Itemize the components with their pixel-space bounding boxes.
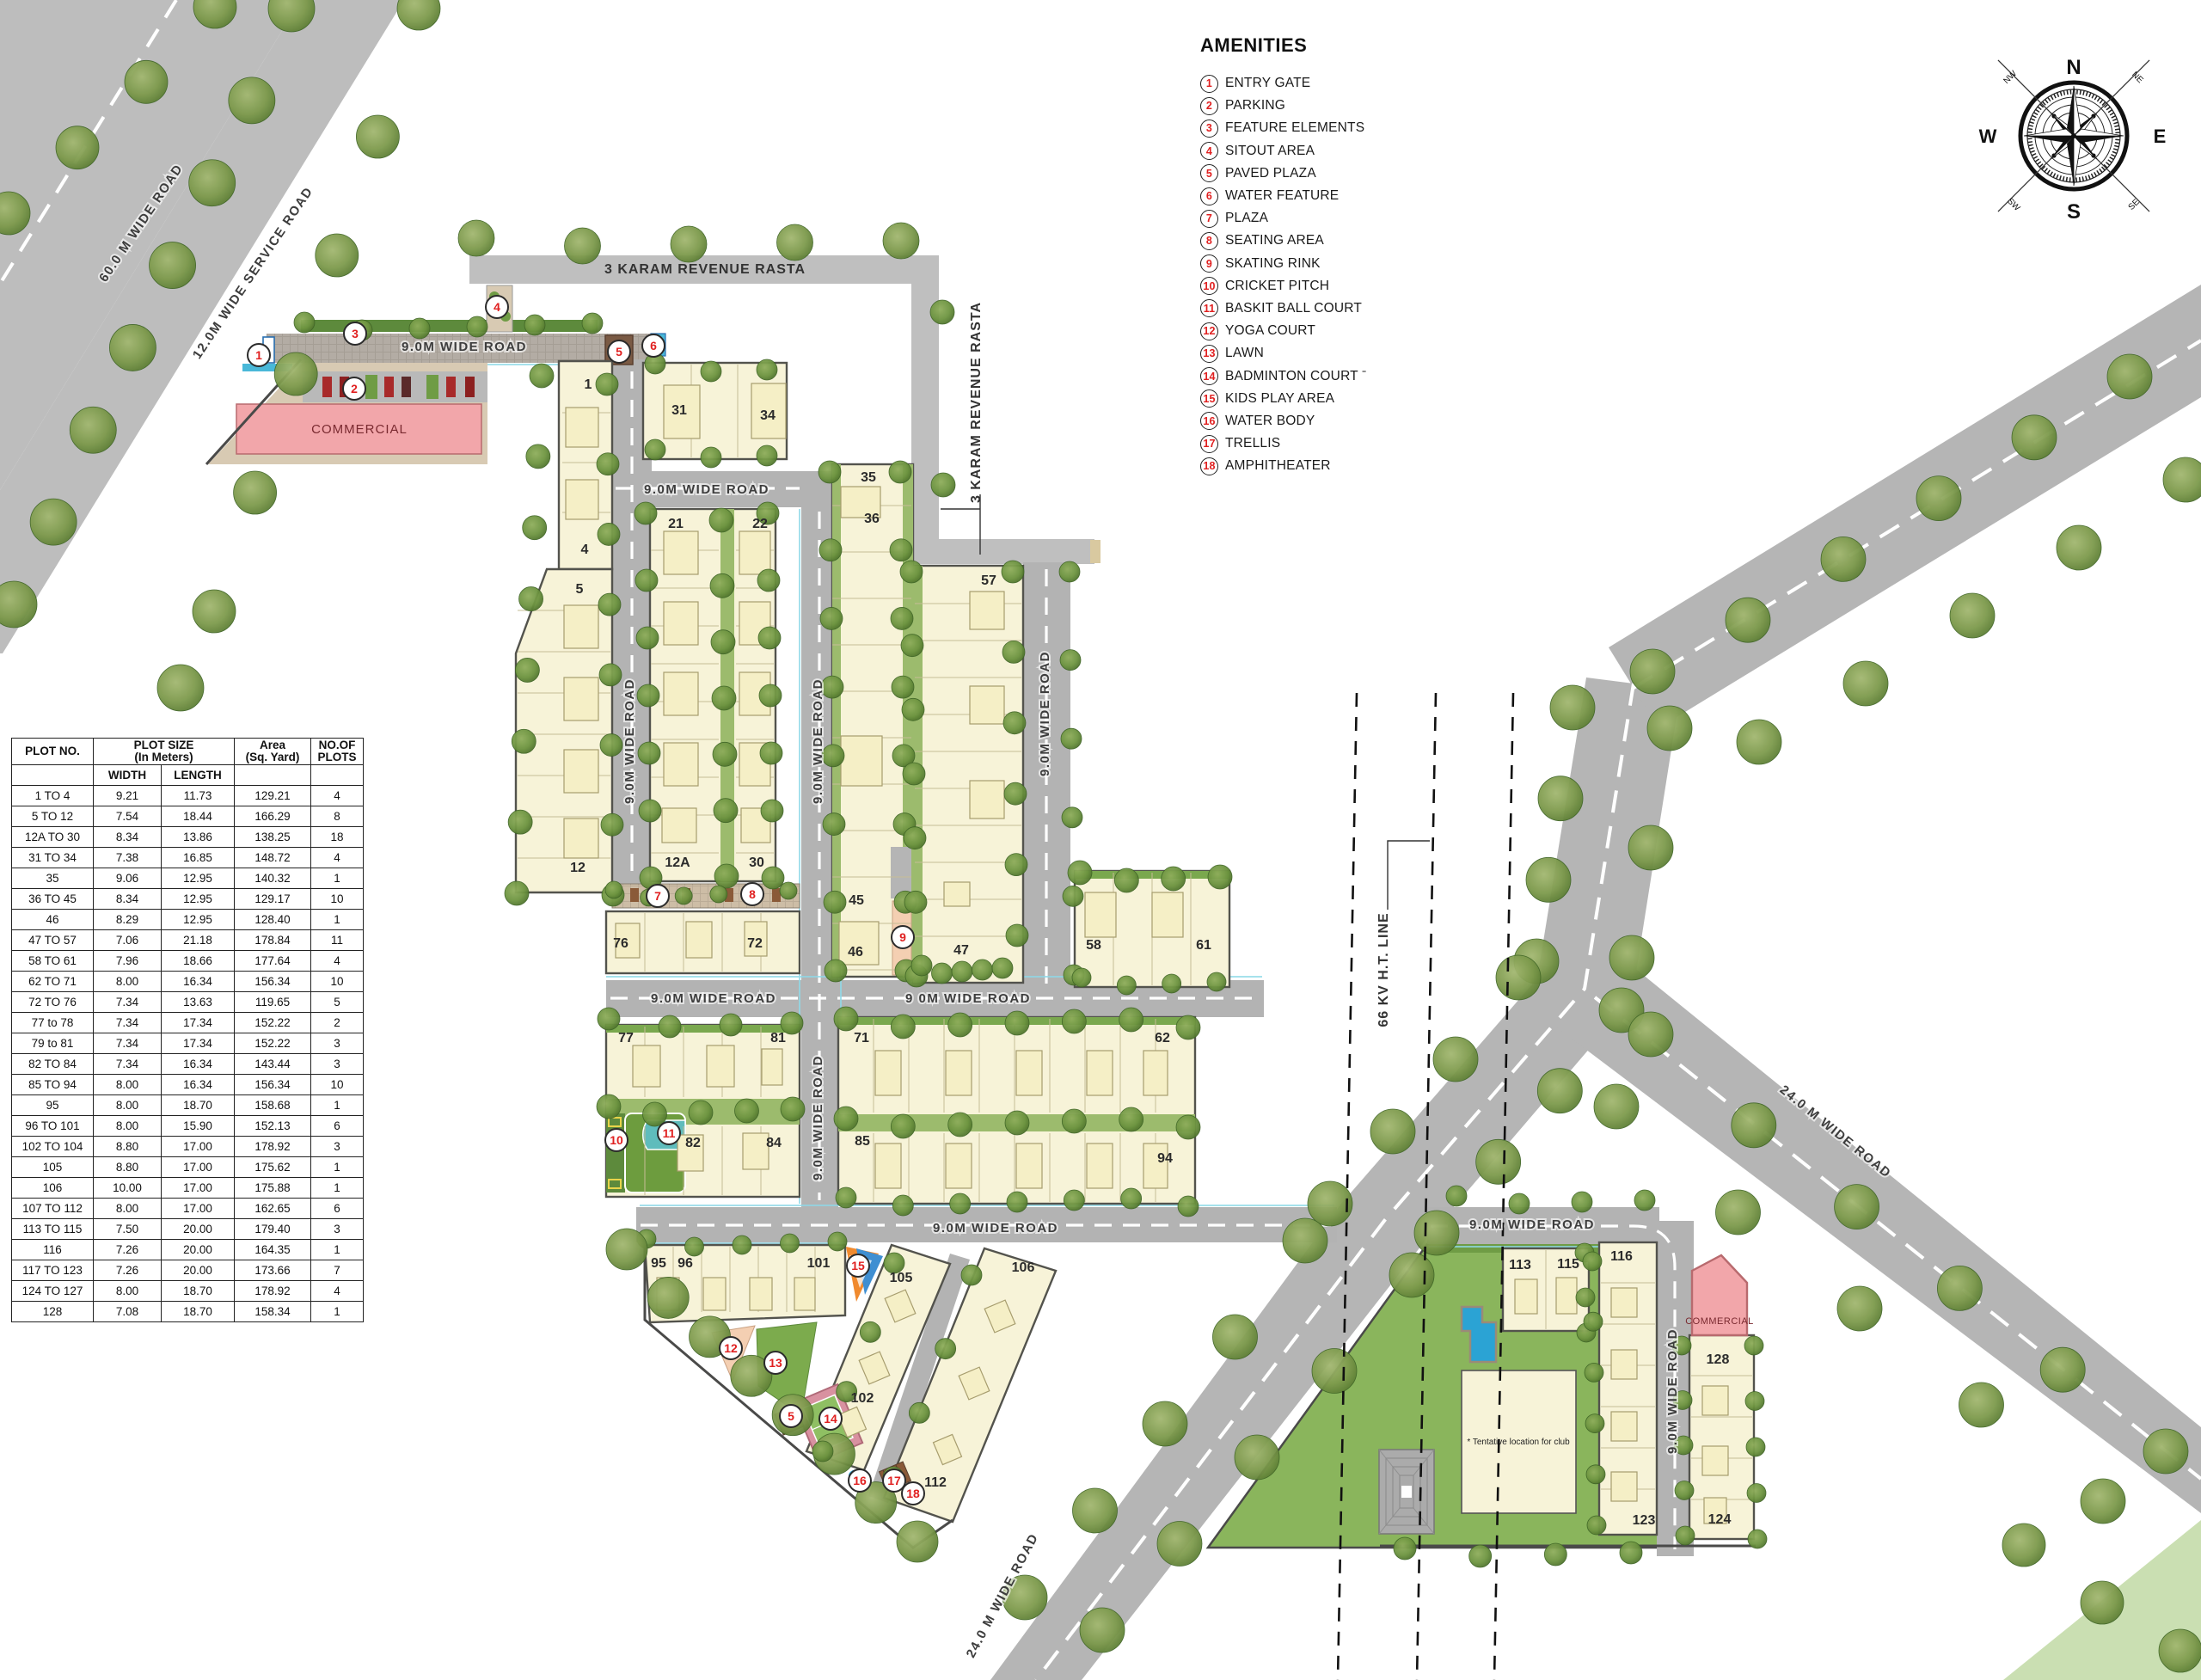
tree	[2040, 1347, 2085, 1392]
amenity-number: 5	[1200, 164, 1218, 182]
plot-number: 115	[1557, 1257, 1579, 1272]
amenity-number: 11	[1200, 299, 1218, 317]
amenity-number: 4	[1200, 142, 1218, 160]
amenities-items: 1ENTRY GATE2PARKING3FEATURE ELEMENTS4SIT…	[1200, 72, 1484, 477]
tree	[56, 126, 99, 169]
tree	[1950, 593, 1995, 638]
tree	[1007, 1192, 1027, 1212]
table-row: 1058.8017.00175.621	[12, 1157, 364, 1178]
amenity-number: 17	[1200, 435, 1218, 453]
table-row: 36 TO 458.3412.95129.1710	[12, 889, 364, 910]
building-footprint	[1143, 1144, 1168, 1188]
tree	[961, 1265, 982, 1285]
tree	[635, 569, 658, 592]
table-cell: 156.34	[235, 972, 311, 992]
amenity-marker-15: 15	[847, 1254, 869, 1277]
tree	[819, 539, 842, 561]
table-cell: 162.65	[235, 1199, 311, 1219]
table-cell: 6	[311, 1116, 364, 1137]
amenity-label: TRELLIS	[1225, 436, 1280, 451]
tree	[701, 361, 721, 382]
road-label: 66 KV H.T. LINE	[1376, 912, 1391, 1027]
amenity-item-4: 4SITOUT AREA	[1200, 140, 1484, 162]
tree	[781, 1234, 800, 1253]
tree	[659, 1015, 681, 1038]
col-length: LENGTH	[162, 765, 235, 786]
tree	[2163, 457, 2201, 502]
table-cell: 178.92	[235, 1281, 311, 1302]
tree	[1550, 685, 1595, 730]
road-label: 9.0M WIDE ROAD	[651, 991, 776, 1006]
tree	[930, 300, 954, 324]
tree	[1162, 974, 1181, 993]
plot-number: 30	[749, 855, 764, 870]
amenity-marker-4: 4	[486, 296, 508, 318]
amenity-item-9: 9SKATING RINK	[1200, 253, 1484, 275]
amenity-label: CRICKET PITCH	[1225, 279, 1329, 294]
table-cell: 16.34	[162, 972, 235, 992]
table-cell: 12A TO 30	[12, 827, 94, 848]
table-row: 85 TO 948.0016.34156.3410	[12, 1075, 364, 1095]
building-footprint	[1556, 1278, 1577, 1314]
tree	[530, 364, 554, 388]
tree	[519, 587, 543, 611]
table-row: 77 to 787.3417.34152.222	[12, 1013, 364, 1033]
tree	[409, 318, 430, 339]
amenity-label: PARKING	[1225, 98, 1285, 113]
tree	[892, 676, 914, 698]
table-cell: 17.00	[162, 1199, 235, 1219]
tree	[635, 502, 657, 524]
tree	[1634, 1190, 1655, 1211]
tree	[935, 1339, 956, 1359]
amenity-item-1: 1ENTRY GATE	[1200, 72, 1484, 95]
tree	[909, 1402, 929, 1423]
table-row: 31 TO 347.3816.85148.724	[12, 848, 364, 868]
table-cell: 7	[311, 1260, 364, 1281]
tree	[1006, 924, 1028, 947]
svg-text:11: 11	[663, 1126, 676, 1140]
table-cell: 12.95	[162, 868, 235, 889]
road-label: 9 0M WIDE ROAD	[905, 991, 1031, 1006]
road-label: 3 KARAM REVENUE RASTA	[969, 302, 984, 503]
amenity-marker-16: 16	[849, 1469, 871, 1492]
table-cell: 4	[311, 848, 364, 868]
table-cell: 156.34	[235, 1075, 311, 1095]
tree	[892, 1195, 913, 1216]
building-footprint	[743, 1133, 769, 1169]
tree	[1586, 1465, 1605, 1484]
table-cell: 18.44	[162, 806, 235, 827]
tree	[1059, 561, 1080, 582]
table-cell: 8.00	[94, 1281, 162, 1302]
building-footprint	[1087, 1144, 1113, 1188]
amenity-number: 9	[1200, 254, 1218, 273]
svg-text:10: 10	[610, 1133, 623, 1147]
tree	[759, 684, 782, 707]
table-cell: 96 TO 101	[12, 1116, 94, 1137]
tree	[1937, 1266, 1982, 1310]
tree	[760, 742, 782, 764]
svg-text:3: 3	[352, 327, 359, 340]
table-cell: 152.22	[235, 1013, 311, 1033]
table-cell: 21.18	[162, 930, 235, 951]
tree	[1537, 1069, 1582, 1113]
table-row: 5 TO 127.5418.44166.298	[12, 806, 364, 827]
building-footprint	[875, 1051, 901, 1095]
tree	[1003, 712, 1026, 734]
amenity-item-6: 6WATER FEATURE	[1200, 185, 1484, 207]
tree	[1389, 1253, 1434, 1297]
tree	[948, 1013, 972, 1037]
table-cell: 10	[311, 972, 364, 992]
building-footprint	[1152, 892, 1183, 937]
table-cell: 10	[311, 1075, 364, 1095]
road-label: 9.0M WIDE ROAD	[811, 678, 825, 804]
building-footprint	[841, 736, 882, 786]
table-row: 113 TO 1157.5020.00179.403	[12, 1219, 364, 1240]
col-area: Area(Sq. Yard)	[235, 739, 311, 765]
plot-number: 12	[570, 861, 586, 875]
amenity-label: WATER BODY	[1225, 414, 1315, 429]
tree	[931, 473, 955, 497]
amenity-marker-14: 14	[819, 1407, 842, 1430]
tree	[932, 963, 953, 984]
svg-text:6: 6	[650, 339, 657, 353]
plot-number: 106	[1012, 1260, 1035, 1275]
table-row: 1167.2620.00164.351	[12, 1240, 364, 1260]
tree	[713, 742, 737, 766]
tree	[757, 445, 777, 466]
plot-number: 31	[671, 403, 687, 418]
svg-text:14: 14	[824, 1412, 837, 1426]
table-row: 79 to 817.3417.34152.223	[12, 1033, 364, 1054]
compass-letter-S: S	[2067, 200, 2081, 224]
building-footprint	[664, 672, 698, 715]
tree	[1609, 935, 1654, 980]
table-cell: 138.25	[235, 827, 311, 848]
plot-number: 34	[760, 408, 776, 423]
tree	[565, 228, 601, 264]
amenity-marker-13: 13	[764, 1352, 787, 1374]
table-cell: 7.26	[94, 1240, 162, 1260]
table-cell: 7.34	[94, 1013, 162, 1033]
compass-letter-N: N	[2066, 56, 2081, 79]
amenity-marker-7: 7	[647, 885, 669, 907]
tree	[1068, 861, 1092, 885]
plot-number: 77	[618, 1031, 634, 1045]
tree	[1509, 1193, 1530, 1214]
tree	[1647, 706, 1692, 751]
tree	[860, 1321, 880, 1342]
tree	[1061, 728, 1082, 749]
amenity-item-3: 3FEATURE ELEMENTS	[1200, 117, 1484, 139]
tree	[1283, 1218, 1327, 1263]
tree	[818, 461, 841, 483]
plot-number: 36	[864, 512, 880, 526]
tree	[600, 734, 622, 757]
amenity-marker-2: 2	[343, 377, 365, 400]
table-cell: 7.26	[94, 1260, 162, 1281]
table-cell: 152.22	[235, 1033, 311, 1054]
building-footprint	[750, 1278, 772, 1310]
compass-letter-E: E	[2154, 126, 2167, 147]
tree	[1587, 1516, 1606, 1535]
tree	[1675, 1481, 1694, 1500]
table-cell: 11.73	[162, 786, 235, 806]
amenity-label: SEATING AREA	[1225, 233, 1324, 248]
table-cell: 1	[311, 868, 364, 889]
plot-number: 22	[752, 517, 768, 531]
tree	[1208, 865, 1232, 889]
amenity-marker-12: 12	[720, 1337, 742, 1359]
table-cell: 10	[311, 889, 364, 910]
table-cell: 1	[311, 1157, 364, 1178]
building-footprint	[1143, 1051, 1168, 1095]
building-footprint	[1611, 1472, 1637, 1501]
tree	[467, 316, 487, 337]
tree	[458, 220, 494, 256]
road-label: 9.0M WIDE ROAD	[1038, 651, 1052, 776]
table-cell: 4	[311, 951, 364, 972]
table-cell: 173.66	[235, 1260, 311, 1281]
block-47-57	[913, 566, 1023, 983]
tree	[1002, 641, 1025, 663]
commercial-left-label: COMMERCIAL	[311, 422, 408, 437]
building-footprint	[794, 1278, 815, 1310]
table-cell: 166.29	[235, 806, 311, 827]
tree	[30, 499, 77, 545]
table-cell: 175.62	[235, 1157, 311, 1178]
tree	[825, 960, 847, 982]
table-cell: 140.32	[235, 868, 311, 889]
amenity-marker-3: 3	[344, 322, 366, 345]
tree	[274, 353, 317, 395]
table-cell: 102 TO 104	[12, 1137, 94, 1157]
tree	[524, 315, 545, 335]
tree	[1576, 1288, 1595, 1307]
tree	[820, 607, 843, 629]
amenity-number: 15	[1200, 389, 1218, 408]
tree	[356, 115, 399, 158]
building-footprint	[875, 1144, 901, 1188]
amenity-number: 12	[1200, 322, 1218, 340]
tree	[1062, 1109, 1086, 1133]
table-row: 359.0612.95140.321	[12, 868, 364, 889]
tree	[901, 635, 923, 657]
table-cell: 1	[311, 910, 364, 930]
table-cell: 72 TO 76	[12, 992, 94, 1013]
table-cell: 20.00	[162, 1219, 235, 1240]
amenity-label: LAWN	[1225, 346, 1264, 361]
table-cell: 31 TO 34	[12, 848, 94, 868]
tree	[1748, 1530, 1767, 1548]
tree	[675, 887, 692, 904]
tree	[897, 1521, 938, 1562]
amenity-label: ENTRY GATE	[1225, 76, 1310, 91]
table-cell: 152.13	[235, 1116, 311, 1137]
table-cell: 178.92	[235, 1137, 311, 1157]
table-cell: 128	[12, 1302, 94, 1322]
table-cell: 5	[311, 992, 364, 1013]
table-cell: 177.64	[235, 951, 311, 972]
building-footprint	[633, 1045, 660, 1087]
tree	[1745, 1392, 1764, 1411]
building-footprint	[564, 750, 598, 793]
tree	[638, 742, 660, 764]
tree	[1747, 1484, 1766, 1503]
road-label: 9.0M WIDE ROAD	[1469, 1217, 1595, 1232]
table-cell: 79 to 81	[12, 1033, 94, 1054]
tree	[1585, 1363, 1603, 1382]
tree	[601, 813, 623, 836]
tree	[824, 891, 846, 913]
tree	[1821, 536, 1866, 581]
plot-number: 61	[1196, 938, 1211, 953]
amenity-number: 14	[1200, 367, 1218, 385]
amenity-label: AMPHITHEATER	[1225, 458, 1331, 474]
site-plan-page: * Tentative location for club 9.0M WIDE …	[0, 0, 2201, 1680]
amenity-marker-5: 5	[780, 1405, 802, 1427]
tree	[1630, 649, 1675, 694]
compass-letter-SE: SE	[2127, 197, 2142, 212]
table-cell: 95	[12, 1095, 94, 1116]
table-row: 58 TO 617.9618.66177.644	[12, 951, 364, 972]
plot-number: 84	[766, 1136, 782, 1150]
table-row: 82 TO 847.3416.34143.443	[12, 1054, 364, 1075]
table-cell: 7.34	[94, 992, 162, 1013]
building-footprint	[1702, 1386, 1728, 1415]
amenity-number: 3	[1200, 120, 1218, 138]
table-row: 47 TO 577.0621.18178.8411	[12, 930, 364, 951]
tree	[904, 891, 927, 913]
tree	[1117, 976, 1136, 995]
amenity-marker-5: 5	[608, 340, 630, 363]
table-cell: 158.34	[235, 1302, 311, 1322]
amenity-marker-10: 10	[605, 1129, 628, 1151]
table-cell: 129.17	[235, 889, 311, 910]
building-footprint	[1085, 892, 1116, 937]
tree	[2002, 1524, 2045, 1567]
table-cell: 10.00	[94, 1178, 162, 1199]
tree	[1526, 857, 1571, 902]
tree	[889, 461, 911, 483]
col-width: WIDTH	[94, 765, 162, 786]
tree	[606, 1229, 647, 1270]
table-cell: 1	[311, 1178, 364, 1199]
road-label: 9.0M WIDE ROAD	[1665, 1328, 1680, 1454]
tree	[1072, 968, 1091, 987]
plot-number: 4	[581, 543, 589, 557]
table-cell: 82 TO 84	[12, 1054, 94, 1075]
tree	[1446, 1186, 1467, 1206]
amenity-item-8: 8SEATING AREA	[1200, 230, 1484, 252]
amenity-label: PLAZA	[1225, 211, 1268, 226]
tree	[2143, 1429, 2188, 1474]
table-cell: 18.70	[162, 1302, 235, 1322]
tree	[1496, 955, 1541, 1000]
table-cell: 175.88	[235, 1178, 311, 1199]
table-cell: 7.96	[94, 951, 162, 972]
building-footprint	[566, 480, 598, 519]
table-cell: 148.72	[235, 848, 311, 868]
tree	[1732, 1103, 1776, 1148]
tree	[891, 607, 913, 629]
amenity-item-13: 13LAWN	[1200, 342, 1484, 365]
svg-text:4: 4	[494, 300, 500, 314]
building-footprint	[970, 781, 1004, 819]
tree	[2107, 354, 2152, 399]
tree	[2159, 1629, 2201, 1672]
table-cell: 18	[311, 827, 364, 848]
building-footprint	[762, 1049, 782, 1085]
compass-rose: NESWNESESWNW	[1979, 56, 2167, 224]
table-cell: 8	[311, 806, 364, 827]
tree	[1176, 1115, 1200, 1139]
col-plot-size: PLOT SIZE(In Meters)	[94, 739, 235, 765]
tree	[2081, 1479, 2125, 1524]
table-row: 1287.0818.70158.341	[12, 1302, 364, 1322]
tree	[639, 800, 661, 822]
table-cell: 20.00	[162, 1260, 235, 1281]
plot-number: 113	[1509, 1258, 1531, 1272]
tree	[761, 800, 783, 822]
compass-letter-NE: NE	[2130, 70, 2145, 85]
amenity-item-2: 2PARKING	[1200, 95, 1484, 117]
amenities-title: AMENITIES	[1200, 34, 1484, 57]
tree	[599, 664, 622, 686]
amenity-marker-8: 8	[741, 883, 763, 905]
building-footprint	[662, 808, 696, 843]
club-note: * Tentative location for club	[1467, 1438, 1570, 1447]
commercial-right-label: COMMERCIAL	[1685, 1316, 1754, 1327]
table-cell: 85 TO 94	[12, 1075, 94, 1095]
tree	[1370, 1109, 1415, 1154]
compass-letter-NW: NW	[2002, 69, 2019, 86]
svg-text:7: 7	[654, 889, 661, 903]
amenity-label: FEATURE ELEMENTS	[1225, 120, 1364, 136]
tree	[1080, 1608, 1125, 1652]
table-cell: 1	[311, 1095, 364, 1116]
table-cell: 16.34	[162, 1075, 235, 1095]
tree	[2081, 1581, 2124, 1624]
tree	[109, 324, 156, 371]
table-row: 102 TO 1048.8017.00178.923	[12, 1137, 364, 1157]
tree	[1005, 854, 1027, 876]
tree	[1843, 661, 1888, 706]
amenity-number: 8	[1200, 232, 1218, 250]
plot-number: 76	[613, 936, 628, 951]
building-footprint	[1611, 1350, 1637, 1379]
amenity-number: 13	[1200, 345, 1218, 363]
tree	[597, 453, 619, 475]
tree	[1959, 1383, 2004, 1427]
table-cell: 18.66	[162, 951, 235, 972]
plot-number: 47	[953, 943, 969, 958]
svg-text:18: 18	[906, 1487, 920, 1500]
table-cell: 179.40	[235, 1219, 311, 1240]
tree	[596, 373, 618, 395]
amenity-number: 6	[1200, 187, 1218, 205]
tree	[1628, 825, 1673, 870]
plot-number: 101	[807, 1256, 831, 1271]
tree	[685, 1237, 704, 1256]
table-cell: 3	[311, 1033, 364, 1054]
tree	[1837, 1286, 1882, 1331]
building-footprint	[566, 408, 598, 447]
table-cell: 7.38	[94, 848, 162, 868]
plot-number: 57	[981, 573, 996, 588]
